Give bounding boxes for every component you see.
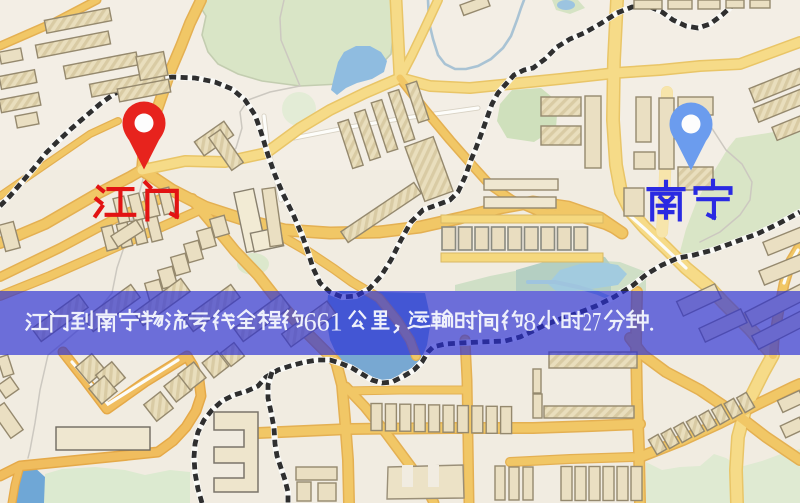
svg-text:27: 27 xyxy=(583,308,602,337)
svg-text:8: 8 xyxy=(523,308,536,337)
svg-text:661: 661 xyxy=(304,308,343,337)
svg-text:.: . xyxy=(648,308,655,337)
